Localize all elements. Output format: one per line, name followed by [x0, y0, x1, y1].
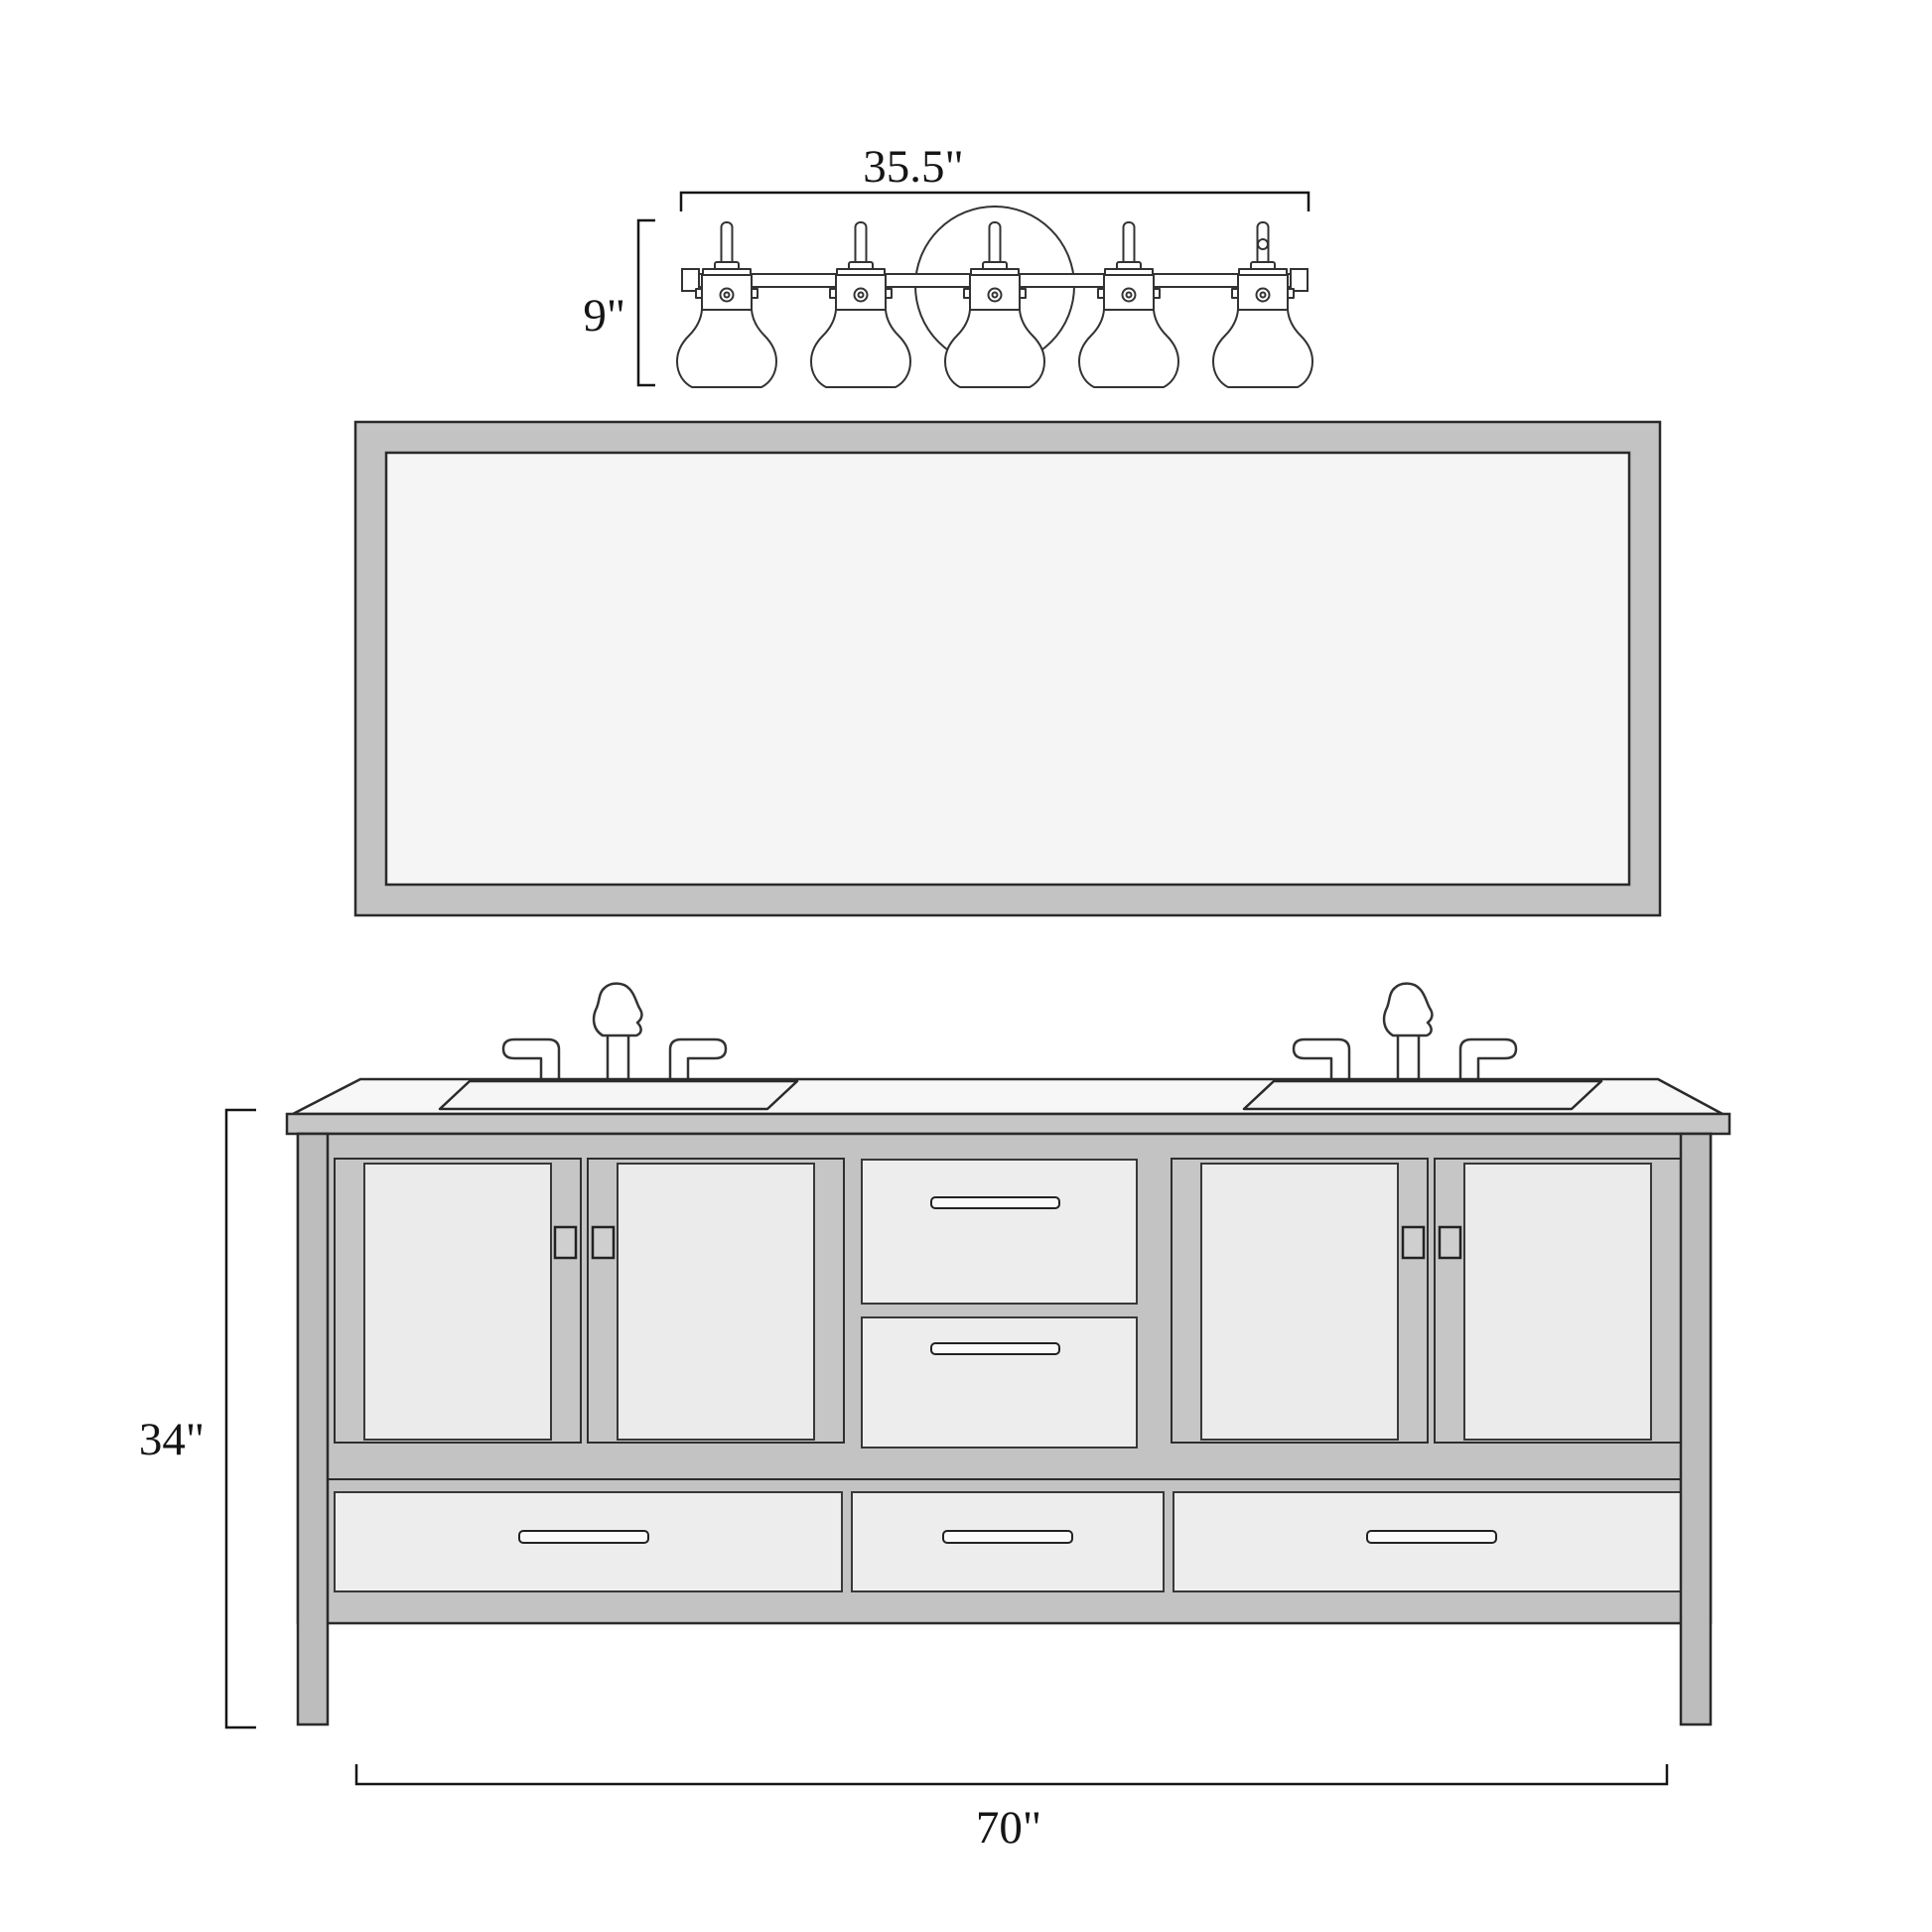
light-fixture — [677, 207, 1312, 387]
sink-right — [1244, 1081, 1601, 1109]
door-left-2 — [588, 1159, 844, 1443]
dimension-label-light-height: 9" — [583, 290, 625, 342]
leg-right — [1681, 1134, 1711, 1725]
vanity-technical-drawing: 35.5" 9" — [0, 0, 1932, 1932]
door-left-1 — [335, 1159, 581, 1443]
door-handle — [1403, 1227, 1424, 1258]
stem-knob-icon — [1258, 239, 1268, 249]
light-bulb-4 — [1079, 222, 1178, 387]
dimension-light-height: 9" — [583, 220, 655, 385]
bottom-drawer-left — [335, 1492, 842, 1591]
drawer-handle — [943, 1531, 1072, 1543]
drawing-canvas: 35.5" 9" — [0, 0, 1932, 1932]
drawer-handle — [931, 1343, 1059, 1354]
drawer-handle — [519, 1531, 648, 1543]
dimension-light-width: 35.5" — [681, 141, 1309, 211]
faucet-right — [1294, 984, 1516, 1081]
door-panel — [364, 1164, 551, 1440]
door-panel — [1201, 1164, 1398, 1440]
drawer-handle — [931, 1197, 1059, 1208]
center-drawer-top — [862, 1160, 1137, 1304]
dimension-bracket — [638, 220, 655, 385]
bottom-drawer-right — [1173, 1492, 1681, 1591]
dimension-vanity-width: 70" — [356, 1764, 1667, 1854]
dimension-label-vanity-width: 70" — [976, 1802, 1041, 1854]
door-handle — [1440, 1227, 1460, 1258]
door-right-1 — [1172, 1159, 1428, 1443]
mirror-glass — [386, 453, 1629, 885]
door-handle — [593, 1227, 614, 1258]
faucet-left — [503, 984, 726, 1081]
vanity-cabinet — [287, 984, 1729, 1725]
door-right-2 — [1435, 1159, 1681, 1443]
door-handle — [555, 1227, 576, 1258]
light-bulb-2 — [811, 222, 910, 387]
dimension-label-light-width: 35.5" — [863, 141, 963, 193]
dimension-vanity-height: 34" — [139, 1110, 256, 1727]
drawer-handle — [1367, 1531, 1496, 1543]
bottom-drawer-center — [852, 1492, 1164, 1591]
drawer-face — [862, 1317, 1137, 1448]
fixture-endcap-right — [1291, 269, 1308, 291]
dimension-bracket — [226, 1110, 256, 1727]
sink-left — [440, 1081, 797, 1109]
door-panel — [618, 1164, 814, 1440]
countertop-edge — [287, 1114, 1729, 1134]
center-drawer-bottom — [862, 1317, 1137, 1448]
fixture-endcap-left — [682, 269, 699, 291]
drawer-face — [862, 1160, 1137, 1304]
dimension-label-vanity-height: 34" — [139, 1414, 205, 1465]
dimension-line — [356, 1764, 1667, 1784]
leg-left — [298, 1134, 328, 1725]
mirror — [355, 422, 1660, 915]
door-panel — [1464, 1164, 1651, 1440]
light-bulb-1 — [677, 222, 776, 387]
